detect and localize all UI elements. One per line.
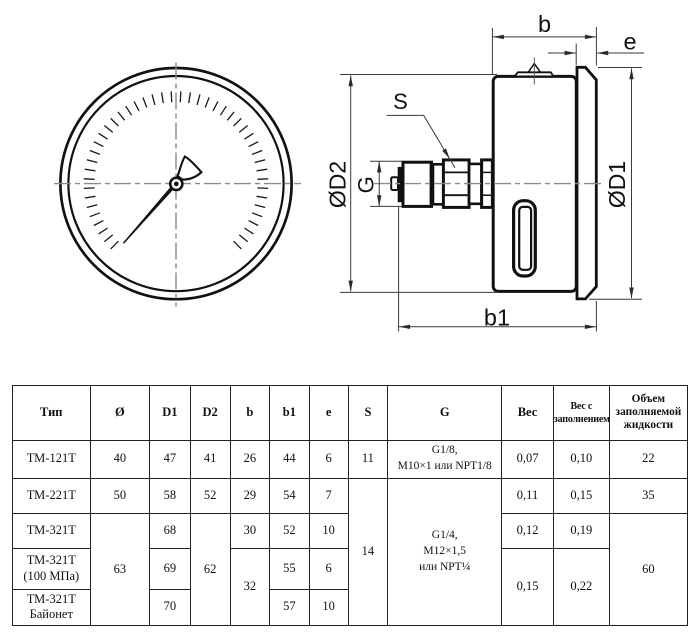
svg-text:ØD1: ØD1 xyxy=(604,161,630,208)
svg-text:e: e xyxy=(623,28,636,54)
svg-text:b: b xyxy=(538,11,551,37)
svg-text:G: G xyxy=(354,176,379,193)
svg-text:b1: b1 xyxy=(484,305,510,331)
svg-text:ØD2: ØD2 xyxy=(325,161,351,208)
svg-text:S: S xyxy=(393,89,408,114)
